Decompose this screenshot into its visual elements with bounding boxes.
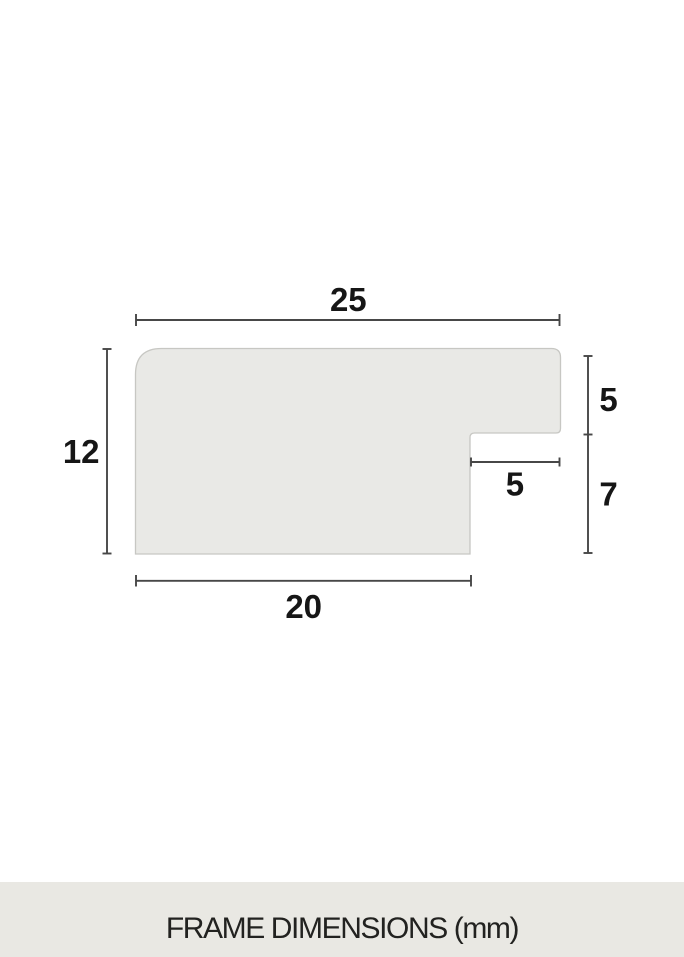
svg-text:5: 5 (599, 381, 617, 418)
svg-text:25: 25 (330, 281, 367, 318)
svg-text:5: 5 (506, 466, 524, 503)
svg-text:7: 7 (599, 476, 617, 513)
svg-text:20: 20 (285, 588, 322, 625)
svg-text:12: 12 (63, 433, 100, 470)
